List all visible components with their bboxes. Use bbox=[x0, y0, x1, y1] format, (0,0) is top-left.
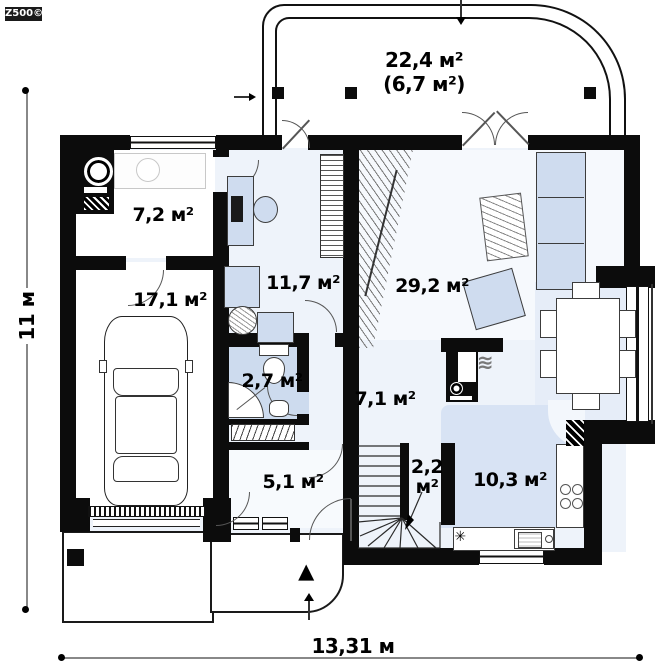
terrace-side-arrow-head bbox=[249, 93, 256, 101]
wall-top-3 bbox=[308, 135, 462, 150]
wall-top-1 bbox=[60, 135, 130, 150]
height-dimension-label: 11 м bbox=[15, 288, 39, 344]
hall-area-label: 7,1 м² bbox=[325, 390, 445, 410]
dim-dot bbox=[22, 87, 29, 94]
dim-dot bbox=[22, 606, 29, 613]
wardrobe-entry bbox=[231, 424, 295, 441]
dining-chair bbox=[540, 310, 557, 338]
sofa-cushion-line bbox=[538, 197, 584, 198]
wall-utility-garage-a bbox=[76, 256, 126, 270]
porch-arrow-line bbox=[308, 600, 310, 620]
wall-right-upper bbox=[624, 135, 640, 285]
car-mirror-left bbox=[99, 360, 107, 373]
dining-table bbox=[556, 298, 620, 394]
floor-plan: ▲ bbox=[0, 0, 655, 672]
sofa bbox=[536, 152, 586, 290]
window-kitchen-bottom bbox=[479, 549, 544, 564]
stove-burner bbox=[572, 498, 583, 509]
car-mirror-right bbox=[185, 360, 193, 373]
snowflake-icon: ✳ bbox=[450, 530, 470, 545]
dining-chair bbox=[572, 392, 600, 410]
desk-chair bbox=[253, 196, 278, 223]
dining-chair bbox=[540, 350, 557, 378]
dining-chair bbox=[619, 350, 636, 378]
dim-line-left bbox=[26, 92, 28, 610]
utility-shelf-icon bbox=[84, 187, 107, 193]
porch-arrow-head bbox=[304, 593, 314, 601]
kitchen-sink-basin bbox=[518, 532, 542, 548]
driveway-post bbox=[67, 549, 84, 566]
office-pouf bbox=[228, 306, 257, 335]
washing-machine-icon bbox=[84, 157, 113, 186]
car-rear-window bbox=[113, 456, 179, 482]
dim-dot bbox=[636, 654, 643, 661]
terrace-post bbox=[272, 87, 284, 99]
wall-center-left-top bbox=[213, 150, 229, 157]
office-seat bbox=[257, 312, 294, 343]
driveway bbox=[62, 531, 214, 623]
entry-area-label: 5,1 м² bbox=[233, 473, 353, 493]
garage-door bbox=[88, 506, 205, 517]
terrace-area-label: 22,4 м² bbox=[344, 50, 504, 71]
stove-burner bbox=[572, 484, 583, 495]
kitchen-faucet bbox=[545, 535, 553, 543]
window-entry-bottom-2 bbox=[262, 517, 288, 530]
office-area-label: 11,7 м² bbox=[243, 274, 363, 294]
stove-burner bbox=[560, 498, 571, 509]
boiler-knob bbox=[450, 382, 463, 395]
garage-area-label: 17,1 м² bbox=[110, 291, 230, 311]
wall-right-kitchen bbox=[584, 438, 602, 565]
wall-utility-garage-b bbox=[166, 256, 213, 270]
car-roof bbox=[115, 396, 177, 454]
door-front-leaf bbox=[350, 499, 352, 541]
utility-counter bbox=[114, 153, 206, 189]
wall-left-bottom-corner bbox=[60, 498, 90, 532]
terrace-post bbox=[584, 87, 596, 99]
wall-entry-bottom-post bbox=[290, 528, 300, 542]
stairs-area-label: 2,2 м² bbox=[405, 458, 449, 498]
brand-logo: Z500© bbox=[5, 7, 42, 21]
boiler-vent bbox=[450, 396, 472, 400]
dining-chair bbox=[619, 310, 636, 338]
garage-door-sill bbox=[93, 519, 200, 527]
window-bay-sill bbox=[651, 284, 653, 424]
rug bbox=[479, 193, 528, 262]
entrance-marker-icon: ▲ bbox=[286, 560, 326, 582]
terrace-entry-arrow-line bbox=[460, 0, 462, 18]
wall-left bbox=[60, 135, 76, 507]
terrace-area-note: (6,7 м²) bbox=[344, 74, 504, 95]
width-dimension-label: 13,31 м bbox=[308, 634, 398, 658]
window-utility-top bbox=[130, 136, 216, 149]
wall-top-2 bbox=[216, 135, 282, 150]
bathroom-area-label: 2,7 м² bbox=[222, 372, 322, 392]
heat-waves-icon: ≋ bbox=[470, 352, 500, 373]
terrace-side-arrow-line bbox=[234, 96, 250, 98]
window-entry-bottom-1 bbox=[233, 517, 259, 530]
wall-bay-top bbox=[596, 266, 655, 288]
living-area-label: 29,2 м² bbox=[372, 277, 492, 297]
car-windshield bbox=[113, 368, 179, 396]
utility-area-label: 7,2 м² bbox=[103, 206, 223, 226]
bath-sink bbox=[269, 400, 289, 417]
toilet-tank bbox=[259, 344, 289, 356]
utility-sink-icon bbox=[136, 158, 160, 182]
wall-entry-top bbox=[215, 442, 309, 450]
sofa-cushion-line bbox=[538, 243, 584, 244]
dim-dot bbox=[58, 654, 65, 661]
wardrobe-office bbox=[320, 154, 344, 258]
terrace-entry-arrow-head bbox=[456, 17, 466, 25]
kitchen-vent-hatch bbox=[566, 420, 584, 446]
desk-monitor-icon bbox=[231, 196, 243, 222]
kitchen-area-label: 10,3 м² bbox=[450, 471, 570, 491]
